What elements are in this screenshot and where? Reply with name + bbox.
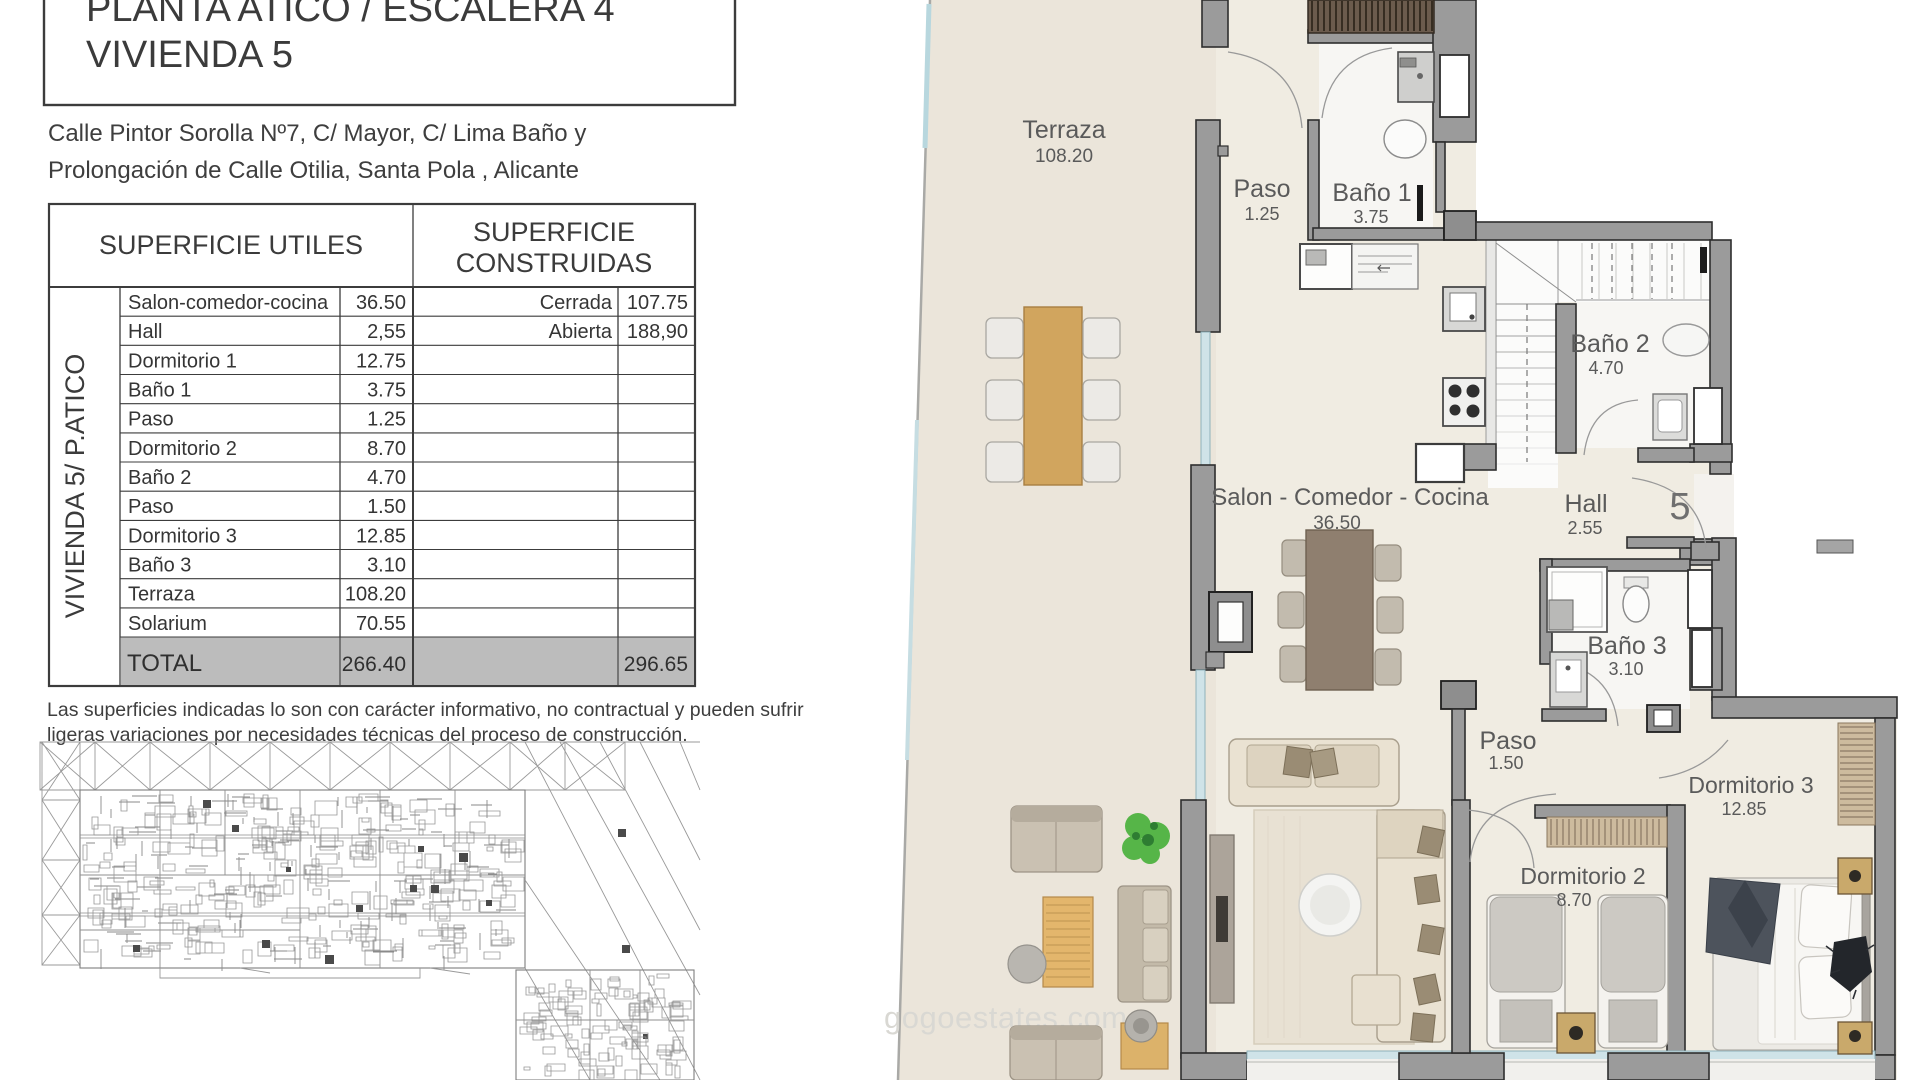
svg-text:Baño 3: Baño 3 [128, 555, 191, 577]
svg-text:70.55: 70.55 [356, 613, 406, 635]
svg-text:3.10: 3.10 [1608, 659, 1643, 679]
svg-text:Solarium: Solarium [128, 613, 207, 635]
svg-text:296.65: 296.65 [624, 653, 688, 676]
svg-text:Paso: Paso [128, 496, 174, 518]
svg-text:VIVIENDA 5: VIVIENDA 5 [86, 34, 293, 76]
svg-text:1.25: 1.25 [1244, 204, 1279, 224]
svg-text:36.50: 36.50 [1313, 513, 1361, 534]
svg-text:Prolongación de Calle Otilia,: Prolongación de Calle Otilia, Santa Pola… [48, 157, 579, 184]
svg-text:12.85: 12.85 [1721, 799, 1766, 819]
svg-text:Paso: Paso [1480, 727, 1537, 755]
svg-text:SUPERFICIE: SUPERFICIE [473, 217, 635, 247]
svg-text:Paso: Paso [128, 409, 174, 431]
svg-text:Salon-comedor-cocina: Salon-comedor-cocina [128, 292, 329, 314]
svg-text:12.75: 12.75 [356, 350, 406, 372]
svg-text:Salon - Comedor - Cocina: Salon - Comedor - Cocina [1211, 484, 1489, 511]
svg-text:Baño 3: Baño 3 [1587, 632, 1666, 660]
svg-text:3.75: 3.75 [367, 380, 406, 402]
svg-text:108.20: 108.20 [1035, 146, 1093, 167]
svg-text:SUPERFICIE UTILES: SUPERFICIE UTILES [99, 230, 363, 260]
svg-text:3.75: 3.75 [1353, 207, 1388, 227]
svg-text:Abierta: Abierta [549, 321, 613, 343]
svg-text:VIVIENDA 5/ P.ATICO: VIVIENDA 5/ P.ATICO [60, 354, 90, 619]
svg-text:12.85: 12.85 [356, 525, 406, 547]
svg-text:Baño 1: Baño 1 [128, 380, 191, 402]
svg-text:Dormitorio 2: Dormitorio 2 [1520, 863, 1645, 889]
svg-text:Baño 2: Baño 2 [1570, 330, 1649, 358]
svg-text:1.50: 1.50 [367, 496, 406, 518]
svg-text:CONSTRUIDAS: CONSTRUIDAS [456, 248, 653, 278]
svg-text:Paso: Paso [1234, 175, 1291, 203]
svg-text:Las superficies indicadas lo s: Las superficies indicadas lo son con car… [47, 699, 804, 721]
svg-text:4.70: 4.70 [367, 467, 406, 489]
svg-text:Dormitorio 1: Dormitorio 1 [128, 350, 237, 372]
svg-text:8.70: 8.70 [367, 438, 406, 460]
svg-text:107.75: 107.75 [627, 292, 688, 314]
svg-text:2.55: 2.55 [1567, 518, 1602, 538]
svg-text:266.40: 266.40 [342, 653, 406, 676]
svg-text:Baño 2: Baño 2 [128, 467, 191, 489]
svg-text:PLANTA ATICO / ESCALERA 4: PLANTA ATICO / ESCALERA 4 [86, 0, 615, 30]
svg-text:Hall: Hall [128, 321, 162, 343]
svg-text:Dormitorio 3: Dormitorio 3 [1688, 772, 1813, 798]
svg-text:Dormitorio 3: Dormitorio 3 [128, 525, 237, 547]
svg-text:Calle Pintor Sorolla Nº7, C/ M: Calle Pintor Sorolla Nº7, C/ Mayor, C/ L… [48, 120, 586, 147]
svg-text:3.10: 3.10 [367, 555, 406, 577]
svg-text:Hall: Hall [1564, 490, 1607, 518]
svg-text:8.70: 8.70 [1556, 890, 1591, 910]
svg-text:1.25: 1.25 [367, 409, 406, 431]
svg-text:Dormitorio 2: Dormitorio 2 [128, 438, 237, 460]
svg-text:Baño 1: Baño 1 [1332, 179, 1411, 207]
svg-text:188,90: 188,90 [627, 321, 688, 343]
svg-text:36.50: 36.50 [356, 292, 406, 314]
svg-text:1.50: 1.50 [1488, 753, 1523, 773]
svg-text:4.70: 4.70 [1588, 358, 1623, 378]
svg-text:ligeras variaciones por necesi: ligeras variaciones por necesidades técn… [47, 724, 688, 746]
svg-text:Terraza: Terraza [1022, 116, 1105, 144]
svg-text:2,55: 2,55 [367, 321, 406, 343]
svg-text:Terraza: Terraza [128, 584, 196, 606]
svg-text:5: 5 [1669, 486, 1690, 528]
svg-text:TOTAL: TOTAL [127, 650, 202, 677]
svg-text:108.20: 108.20 [345, 584, 406, 606]
svg-text:Cerrada: Cerrada [540, 292, 613, 314]
